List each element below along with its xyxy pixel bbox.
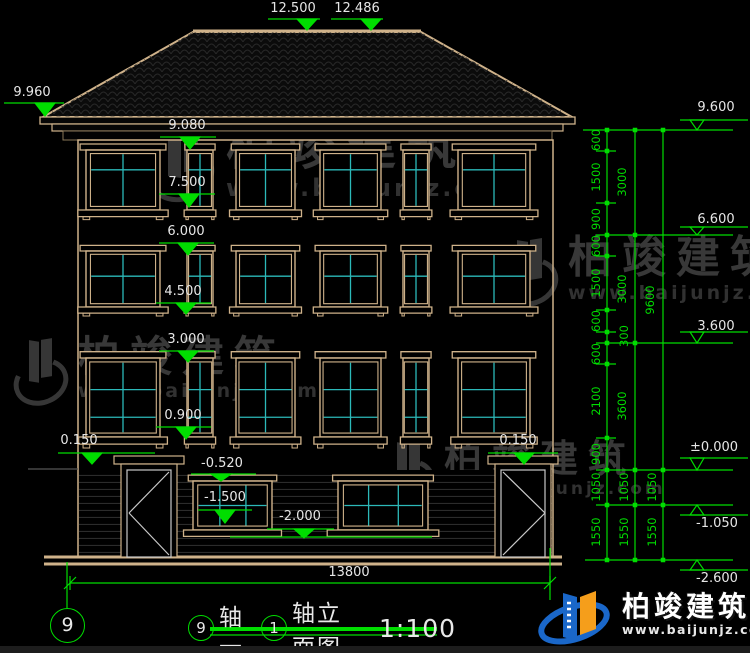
windows-floor3	[78, 144, 538, 220]
brand-logo-icon	[536, 581, 616, 649]
level-label-win2-top: 6.000	[157, 225, 215, 239]
roof	[40, 31, 575, 140]
level-label-win3-top: 9.080	[158, 119, 216, 133]
level-label-door-left: 0.150	[48, 434, 110, 448]
dim-label: 1550	[645, 517, 659, 546]
level-label-site: -1.050	[684, 517, 750, 531]
dim-label-total: 9600	[643, 285, 657, 314]
level-label-eave-left: 9.960	[2, 86, 62, 100]
dim-label: 900	[589, 443, 603, 465]
level-label-ground: ±0.000	[680, 441, 748, 455]
level-label-win1-top: 3.000	[157, 333, 215, 347]
width-dimension-label: 13800	[315, 566, 383, 580]
axis-bubble-9: 9	[50, 608, 85, 643]
dim-label: 1500	[589, 268, 603, 297]
brand-url: www.baijunjz.com	[622, 624, 750, 637]
title-segment: 轴—	[219, 598, 256, 653]
dim-label: 1500	[589, 162, 603, 191]
windows-floor1	[79, 352, 538, 448]
dim-label: 600	[589, 310, 603, 332]
title-axis-bubble-left: 9	[188, 615, 214, 641]
dim-label: 1550	[589, 517, 603, 546]
level-label-roof-peak2: 12.486	[328, 2, 386, 16]
windows-floor2	[78, 245, 538, 316]
dim-label: 300	[617, 325, 631, 347]
level-label-bw-mid: -1.500	[196, 491, 254, 505]
dim-label: 1050	[617, 472, 631, 501]
dim-label: 2100	[589, 386, 603, 415]
elevation-drawing	[0, 0, 750, 653]
level-label-win2-sill: 4.500	[154, 285, 212, 299]
bottom-strip	[0, 646, 750, 653]
level-label-bw-bottom: -2.000	[266, 510, 334, 524]
dim-label: 900	[589, 208, 603, 230]
dim-label: 1050	[589, 472, 603, 501]
level-label-win3-sill: 7.500	[158, 176, 216, 190]
level-label-floor2: 3.600	[686, 320, 746, 334]
level-label-floor3: 6.600	[686, 213, 746, 227]
title-scale: 1:100	[379, 614, 456, 643]
level-label-door-right: 0.150	[486, 434, 550, 448]
drawing-title: 9 轴— 1 轴立面图 1:100	[188, 594, 456, 653]
title-axis-bubble-right: 1	[261, 615, 287, 641]
level-label-right-eave: 9.600	[686, 101, 746, 115]
dim-label: 3600	[615, 391, 629, 420]
door-left	[114, 456, 184, 557]
dim-label: 3000	[615, 274, 629, 303]
title-segment: 轴立面图	[292, 594, 366, 653]
dim-label: 600	[589, 235, 603, 257]
brand-name: 柏竣建筑	[622, 593, 750, 621]
cad-elevation-screenshot: 柏竣建筑 www.baijunjz.com 柏竣建筑 www.baijunjz.…	[0, 0, 750, 653]
level-label-roof-peak: 12.500	[264, 2, 322, 16]
dim-label: 600	[589, 343, 603, 365]
dim-label: 3000	[615, 167, 629, 196]
dim-label: 1550	[617, 517, 631, 546]
dim-label: 1050	[645, 472, 659, 501]
level-label-win1-sill: 0.900	[154, 409, 212, 423]
door-right	[488, 456, 558, 557]
brand-logo: 柏竣建筑 www.baijunjz.com	[536, 581, 750, 649]
level-label-bw-top: -0.520	[188, 457, 256, 471]
elevation-markers-right	[680, 120, 748, 570]
dim-label: 600	[589, 129, 603, 151]
